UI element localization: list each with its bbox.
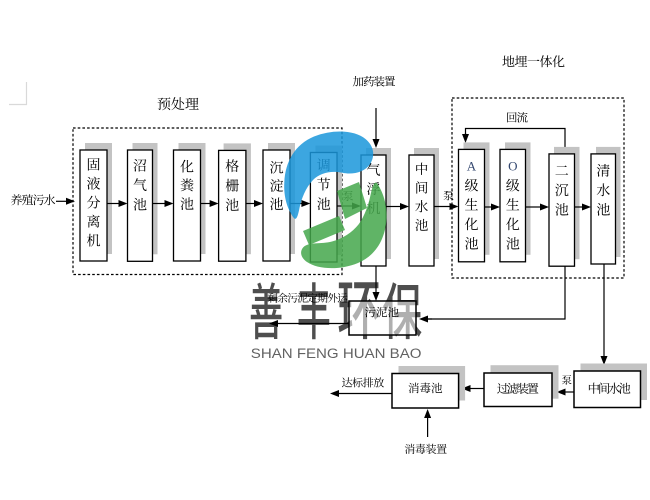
svg-text:SHAN FENG HUAN BAO: SHAN FENG HUAN BAO — [251, 346, 422, 361]
svg-text:A: A — [467, 159, 477, 174]
svg-text:O: O — [508, 159, 517, 174]
